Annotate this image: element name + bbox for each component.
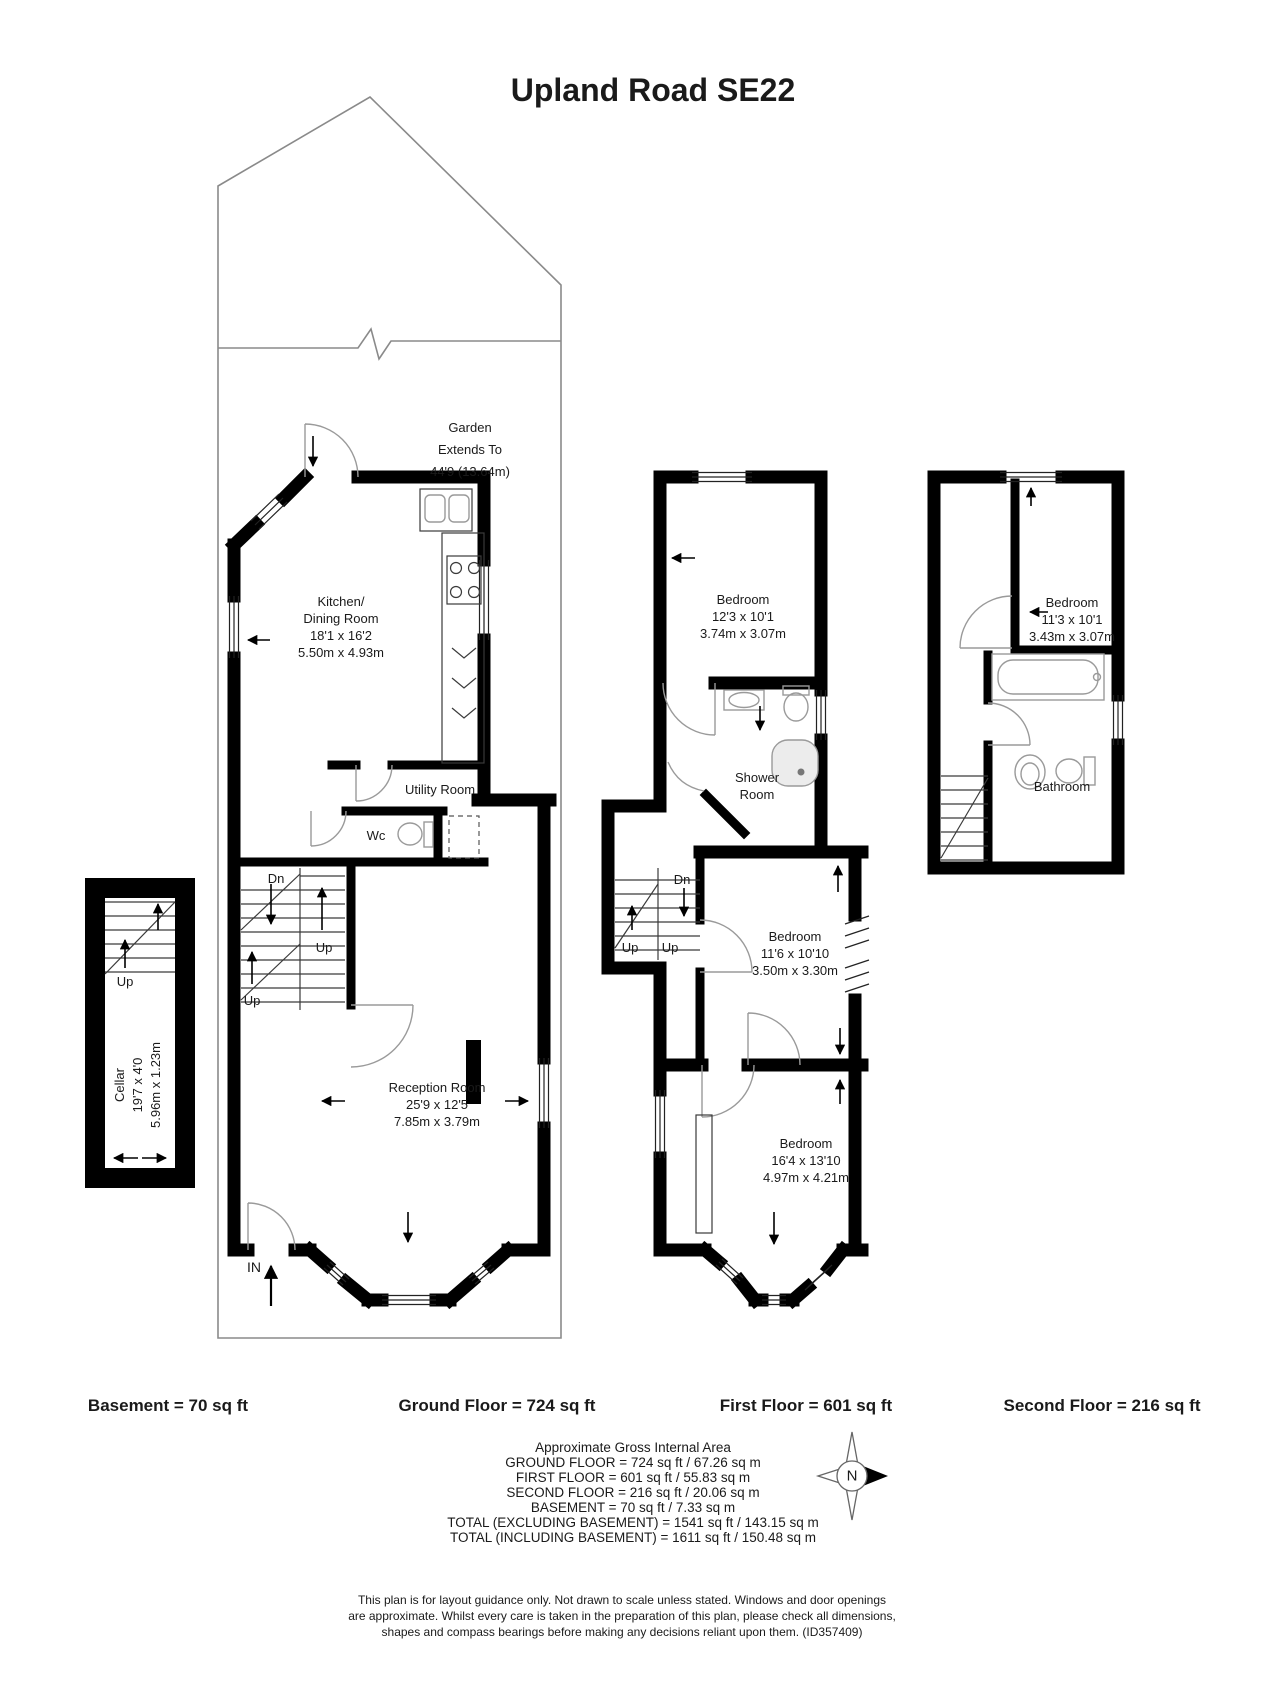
area-summary: Approximate Gross Internal Area GROUND F… bbox=[447, 1440, 819, 1545]
basement-plan bbox=[85, 878, 195, 1188]
compass-north-label: N bbox=[847, 1468, 858, 1485]
room-label-kitchen: Kitchen/ Dining Room 18'1 x 16'2 5.50m x… bbox=[298, 593, 384, 661]
counter-marks bbox=[452, 648, 476, 718]
room-label-shower-room: Shower Room bbox=[735, 769, 779, 803]
disclaimer-text: This plan is for layout guidance only. N… bbox=[348, 1592, 896, 1640]
kitchen-sink-icon bbox=[420, 489, 472, 531]
toilet-icon bbox=[398, 822, 433, 847]
stairs-dn-label: Dn bbox=[268, 870, 285, 887]
room-label-bedroom-middle: Bedroom 11'6 x 10'10 3.50m x 3.30m bbox=[752, 928, 838, 979]
stairs-up-label: Up bbox=[117, 973, 134, 990]
staircase bbox=[941, 776, 988, 860]
break-line bbox=[218, 329, 561, 359]
room-label-reception: Reception Room 25'9 x 12'5 7.85m x 3.79m bbox=[389, 1079, 486, 1130]
room-label-bedroom-rear: Bedroom 16'4 x 13'10 4.97m x 4.21m bbox=[763, 1135, 849, 1186]
room-label-bathroom: Bathroom bbox=[1034, 778, 1090, 795]
ground-floor-plan bbox=[230, 424, 551, 1306]
room-label-bedroom-front: Bedroom 12'3 x 10'1 3.74m x 3.07m bbox=[700, 591, 786, 642]
hob-icon bbox=[447, 556, 481, 604]
stairs-up-label: Up bbox=[244, 992, 261, 1009]
entrance-label: IN bbox=[247, 1259, 261, 1276]
garden-label: Garden Extends To 44'9 (13.64m) bbox=[430, 417, 510, 483]
room-label-bedroom-top: Bedroom 11'3 x 10'1 3.43m x 3.07m bbox=[1029, 594, 1115, 645]
second-floor-plan bbox=[934, 473, 1123, 869]
window bbox=[230, 494, 549, 1305]
room-label-wc: Wc bbox=[367, 827, 386, 844]
basement-floor-label: Basement = 70 sq ft bbox=[88, 1396, 248, 1416]
wardrobe bbox=[696, 1115, 712, 1233]
second-floor-label: Second Floor = 216 sq ft bbox=[1004, 1396, 1201, 1416]
stairs-up-label: Up bbox=[316, 939, 333, 956]
stairs-up-label: Up bbox=[622, 939, 639, 956]
stairs-dn-label: Dn bbox=[674, 871, 691, 888]
toilet-icon bbox=[783, 686, 809, 721]
room-label-cellar: Cellar 19'7 x 4'0 5.96m x 1.23m bbox=[111, 1042, 165, 1128]
area-summary-heading: Approximate Gross Internal Area bbox=[447, 1440, 819, 1455]
stairs-up-label: Up bbox=[662, 939, 679, 956]
room-label-utility: Utility Room bbox=[405, 781, 475, 798]
floorplan-page: Upland Road SE22 Garden Extends To 44'9 … bbox=[0, 0, 1280, 1708]
page-title: Upland Road SE22 bbox=[511, 72, 796, 109]
appliance-dashed bbox=[449, 816, 479, 858]
first-floor-label: First Floor = 601 sq ft bbox=[720, 1396, 892, 1416]
ground-floor-label: Ground Floor = 724 sq ft bbox=[399, 1396, 596, 1416]
washbasin-icon bbox=[724, 690, 764, 710]
bathtub-icon bbox=[992, 654, 1104, 700]
garden-outline bbox=[218, 97, 561, 1338]
